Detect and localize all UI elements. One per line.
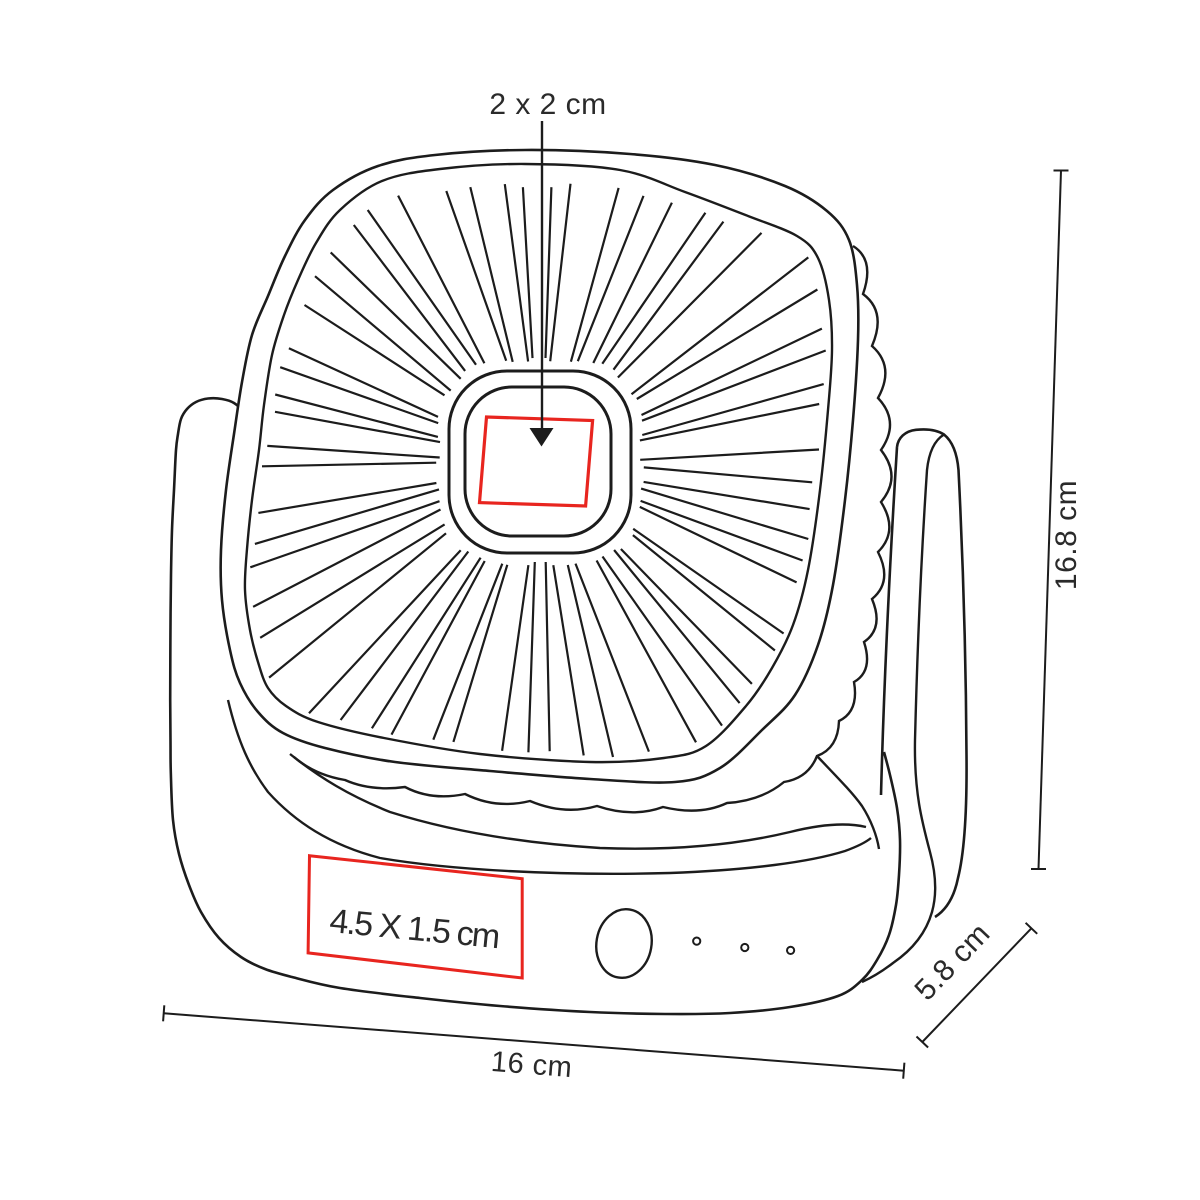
- svg-text:2 x 2 cm: 2 x 2 cm: [489, 88, 606, 121]
- svg-text:16 cm: 16 cm: [490, 1046, 574, 1084]
- svg-text:16.8 cm: 16.8 cm: [1050, 480, 1083, 590]
